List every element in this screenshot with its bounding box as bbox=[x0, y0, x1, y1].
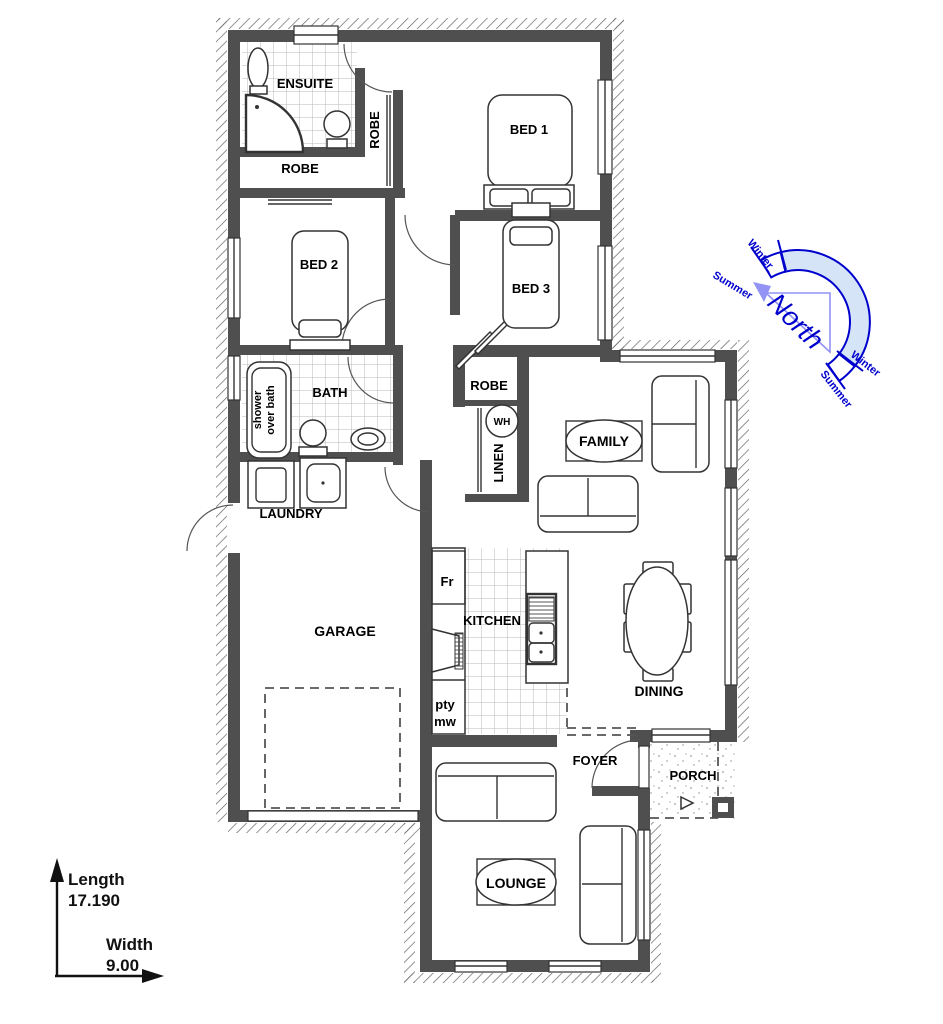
bed3-label: BED 3 bbox=[512, 281, 550, 296]
dimension-indicator: Length 17.190 Width 9.00 bbox=[50, 858, 164, 983]
wall-top bbox=[228, 30, 612, 42]
washing-machine-icon bbox=[248, 461, 294, 508]
bath-label: BATH bbox=[312, 385, 347, 400]
sink-drainer bbox=[529, 597, 554, 621]
width-label: Width bbox=[106, 935, 153, 954]
north-arrow-head-icon bbox=[753, 282, 771, 302]
shower-head-icon bbox=[255, 105, 259, 109]
family-label: FAMILY bbox=[579, 433, 630, 449]
bath-basin-icon bbox=[351, 428, 385, 450]
lounge-sofa-top-icon bbox=[436, 763, 556, 821]
family-sofa-bottom-icon bbox=[538, 476, 638, 532]
wall-kitchen-lounge bbox=[429, 735, 557, 747]
fridge-label: Fr bbox=[441, 574, 454, 589]
width-arrow-head-icon bbox=[142, 969, 164, 983]
shower-over-bath-label-2: over bath bbox=[265, 385, 277, 435]
wall-garage-right bbox=[420, 460, 432, 972]
front-door-leaf bbox=[639, 746, 649, 788]
robe-ensuite-label: ROBE bbox=[367, 111, 382, 149]
linen-label: LINEN bbox=[491, 444, 506, 483]
pantry-label: pty bbox=[435, 697, 455, 712]
garage-car-space bbox=[265, 688, 400, 808]
length-label: Length bbox=[68, 870, 125, 889]
length-arrow-head-icon bbox=[50, 858, 64, 882]
porch-label: PORCH bbox=[670, 768, 717, 783]
laundry-door-opening bbox=[228, 503, 240, 553]
wall-left bbox=[228, 30, 240, 822]
floor-plan-page: ENSUITE ROBE ROBE BED 1 BED 2 BED 3 BATH… bbox=[0, 0, 943, 1024]
bed1-door-arc bbox=[405, 215, 455, 265]
microwave-label: mw bbox=[434, 714, 457, 729]
north-label: North bbox=[762, 287, 830, 355]
garage-door bbox=[248, 811, 418, 821]
bed1-icon bbox=[484, 95, 574, 209]
bed2-label: BED 2 bbox=[300, 257, 338, 272]
laundry-label: LAUNDRY bbox=[259, 506, 322, 521]
robe-bed2-label: ROBE bbox=[281, 161, 319, 176]
island-bench bbox=[526, 551, 568, 683]
width-value: 9.00 bbox=[106, 956, 139, 975]
bed3-icon bbox=[503, 203, 559, 328]
porch-post-core bbox=[718, 803, 728, 812]
garage-label: GARAGE bbox=[314, 623, 375, 639]
lounge-sofa-right-icon bbox=[580, 826, 636, 944]
dining-label: DINING bbox=[635, 683, 684, 699]
bath-toilet-icon bbox=[299, 420, 327, 456]
bed2-icon bbox=[290, 231, 350, 350]
robe-hall-label: ROBE bbox=[470, 378, 508, 393]
bed1-label: BED 1 bbox=[510, 122, 548, 137]
wh-label: WH bbox=[494, 417, 511, 428]
kitchen-label: KITCHEN bbox=[463, 613, 521, 628]
ensuite-basin-icon bbox=[324, 111, 350, 148]
ensuite-toilet-icon bbox=[248, 48, 268, 94]
foyer-label: FOYER bbox=[573, 753, 618, 768]
summer-top-label: Summer bbox=[710, 269, 755, 302]
dining-table-icon bbox=[624, 562, 691, 681]
ensuite-label: ENSUITE bbox=[277, 76, 334, 91]
laundry-tub-icon bbox=[300, 458, 346, 508]
shower-over-bath-label-1: shower bbox=[252, 390, 264, 429]
family-sofa-right-icon bbox=[652, 376, 709, 472]
floor-plan-svg: ENSUITE ROBE ROBE BED 1 BED 2 BED 3 BATH… bbox=[0, 0, 943, 1024]
lounge-label: LOUNGE bbox=[486, 875, 546, 891]
length-value: 17.190 bbox=[68, 891, 120, 910]
